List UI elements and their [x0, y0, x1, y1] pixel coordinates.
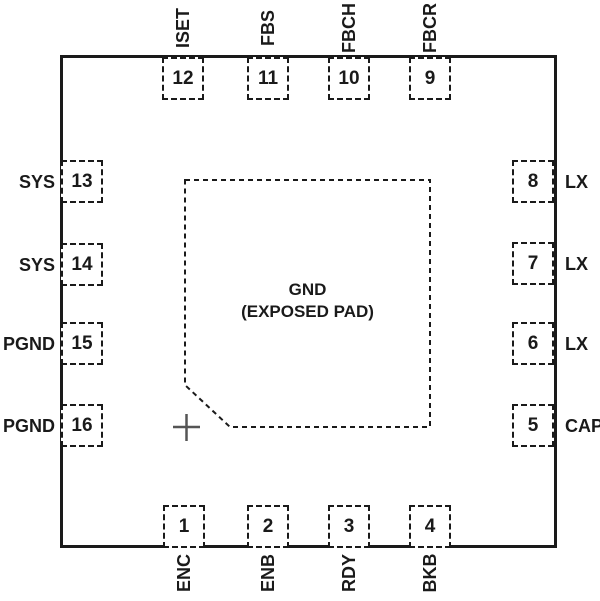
pin-label-7-lx: LX	[565, 254, 600, 274]
pin-label-16-pgnd: PGND	[0, 416, 55, 436]
exposed-pad-label: GND (EXPOSED PAD)	[185, 279, 430, 323]
pin-number: 6	[528, 334, 539, 353]
pin-label-15-pgnd: PGND	[0, 334, 55, 354]
pin-number: 8	[528, 172, 539, 191]
exposed-pad-label-line2: (EXPOSED PAD)	[185, 301, 430, 323]
pin-label-2-enb: ENB	[258, 528, 278, 601]
pin-label-14-sys: SYS	[0, 255, 55, 275]
pin-number: 13	[71, 172, 92, 191]
pin-label-1-enc: ENC	[174, 528, 194, 601]
pin-number: 15	[71, 334, 92, 353]
exposed-pad-label-line1: GND	[185, 279, 430, 301]
pin-label-11-fbs: FBS	[258, 0, 278, 73]
pin-box-15: 15	[61, 322, 103, 365]
pin-box-16: 16	[61, 404, 103, 447]
pin-number: 14	[71, 255, 92, 274]
pin-label-10-fbch: FBCH	[339, 0, 359, 73]
pin-label-9-fbcr: FBCR	[420, 0, 440, 73]
pin-box-14: 14	[61, 243, 103, 286]
pin-box-7: 7	[512, 242, 554, 285]
pin-label-8-lx: LX	[565, 172, 600, 192]
alignment-cross-icon	[173, 414, 200, 441]
pinout-diagram: GND (EXPOSED PAD) 12ISET11FBS10FBCH9FBCR…	[0, 0, 600, 601]
pin-number: 5	[528, 416, 539, 435]
pin-box-5: 5	[512, 404, 554, 447]
pin-box-6: 6	[512, 322, 554, 365]
pin-number: 7	[528, 254, 539, 273]
pin-number: 16	[71, 416, 92, 435]
pin-label-3-rdy: RDY	[339, 528, 359, 601]
pin-box-8: 8	[512, 160, 554, 203]
pin-label-6-lx: LX	[565, 334, 600, 354]
pin-label-12-iset: ISET	[173, 0, 193, 73]
pin-box-13: 13	[61, 160, 103, 203]
pin-label-13-sys: SYS	[0, 172, 55, 192]
pin-label-4-bkb: BKB	[420, 528, 440, 601]
pin-label-5-cap: CAP	[565, 416, 600, 436]
